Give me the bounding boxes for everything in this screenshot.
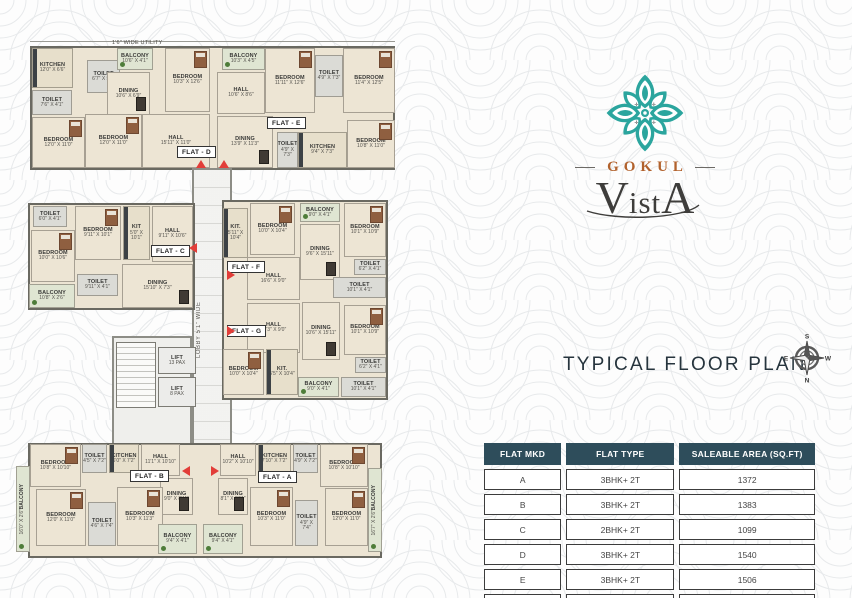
room-dimensions: 10'8" X 10'10" [328, 466, 359, 472]
room-dimensions: 4'5" X 7'2" [83, 459, 106, 465]
room-balcony: BALCONY10'6" X 4'1" [117, 48, 153, 70]
table-cell: 1540 [679, 544, 815, 565]
room-dimensions: 11'11" X 12'6" [275, 81, 305, 87]
room-bedroom: BEDROOM10'8" X 10'10" [30, 444, 81, 487]
bed-icon [379, 51, 392, 68]
room-dining: DINING10'6" X 6'9" [107, 72, 150, 115]
table-cell: 1165 [679, 594, 815, 598]
room-dining: DINING9'0" X 8'11" [160, 478, 193, 515]
room-balcony: BALCONY9'4" X 4'1" [158, 524, 197, 554]
room-bedroom: BEDROOM10'1" X 10'9" [344, 203, 386, 257]
svg-text:✛: ✛ [634, 120, 638, 126]
bed-icon [194, 51, 207, 68]
room-kitchen: KIT.5'5" X 10'4" [266, 349, 298, 395]
top-dimension-line [30, 41, 395, 42]
room-toilet: TOILET4'9" X 7'3" [277, 132, 298, 168]
room-bedroom: BEDROOM10'3" X 12'6" [165, 48, 210, 112]
dining-table-icon [234, 497, 244, 511]
left-dash [575, 167, 595, 168]
dining-table-icon [326, 262, 336, 276]
table-header-cell: FLAT TYPE [566, 443, 674, 465]
room-dimensions: 16'0" X 2'6" [20, 509, 26, 534]
room-dimensions: 10'3" X 12'6" [173, 80, 201, 86]
table-row: E3BHK+ 2T1506 [484, 569, 815, 590]
room-dimensions: 10'8" X 2'6" [39, 296, 64, 302]
bed-icon [277, 490, 290, 507]
flat-chip-a: FLAT - A [258, 471, 297, 483]
room-dimensions: 10'0" X 10'6" [39, 256, 67, 262]
bed-icon [279, 206, 292, 223]
room-kitchen: KITCHEN9'4" X 7'3" [298, 132, 347, 168]
room-dimensions: 9'6" X 15'11" [306, 252, 334, 258]
flat-area-table: FLAT MKDFLAT TYPESALEABLE AREA (SQ.FT) A… [479, 439, 820, 598]
entry-arrow-right [227, 326, 235, 336]
room-dimensions: 9'0" X 4'1" [309, 213, 332, 219]
room-kitchen: KIT.5'11" X 10'4" [223, 208, 248, 258]
room-kitchen: KIT5'0" X 10'1" [123, 206, 150, 260]
room-dimensions: 10'6" X 8'6" [228, 93, 253, 99]
flat-area-table-wrap: FLAT MKDFLAT TYPESALEABLE AREA (SQ.FT) A… [479, 439, 820, 598]
floor-plan: 1'6" WIDE UTILITY LOBBY 5'1" WIDE KITCHE… [0, 0, 480, 598]
table-row: A3BHK+ 2T1372 [484, 469, 815, 490]
room-balcony: BALCONY16'7" X 2'6" [368, 468, 382, 552]
room-dimensions: 9'4" X 7'3" [311, 150, 334, 156]
room-dimensions: 16'7" X 2'6" [372, 510, 378, 535]
room-dimensions: 9'4" X 4'1" [166, 539, 189, 545]
room-dimensions: 10'1" X 4'1" [351, 387, 376, 393]
table-row: D3BHK+ 2T1540 [484, 544, 815, 565]
room-dimensions: 10'0" X 10'4" [258, 229, 286, 235]
bed-icon [70, 492, 83, 509]
room-dimensions: 12'0" X 11'0" [100, 141, 128, 147]
room-dimensions: 6'2" X 4'1" [359, 267, 382, 273]
room-dimensions: 6'2" X 4'1" [359, 365, 382, 371]
compass-bottom-label: N [805, 378, 810, 385]
right-dash [695, 167, 715, 168]
room-dimensions: 10'1" X 4'1" [347, 288, 372, 294]
room-toilet: TOILET4'9" X 7'3" [315, 55, 343, 97]
room-bedroom: BEDROOM12'0" X 11'0" [325, 488, 368, 546]
room-kitchen: KITCHEN6'0" X 7'2" [109, 444, 139, 473]
dining-table-icon [179, 497, 189, 511]
room-balcony: BALCONY9'0" X 4'1" [300, 203, 340, 222]
room-bedroom: BEDROOM10'0" X 10'4" [250, 203, 295, 255]
table-cell: 2BHK+ 2T [566, 594, 674, 598]
table-cell: D [484, 544, 561, 565]
room-dimensions: 11'4" X 12'5" [355, 81, 383, 87]
table-cell: 1506 [679, 569, 815, 590]
room-dimensions: 4'9" X 7'2" [294, 459, 317, 465]
room-dimensions: 4'6" X 7'4" [91, 524, 114, 530]
bed-icon [59, 233, 72, 250]
table-row: F2BHK+ 2T1165 [484, 594, 815, 598]
dining-table-icon [136, 97, 146, 111]
room-balcony: BALCONY10'3" X 4'5" [222, 48, 265, 70]
room-dining: DINING15'10" X 7'3" [122, 264, 193, 308]
room-dimensions: 5'11" X 10'4" [224, 231, 247, 242]
room-label: BALCONY [372, 485, 378, 510]
room-dimensions: 10'0" X 10'4" [229, 372, 257, 378]
table-row: B3BHK+ 2T1383 [484, 494, 815, 515]
bed-icon [69, 120, 82, 137]
room-dimensions: 9'11" X 10'1" [84, 233, 112, 239]
table-header-cell: FLAT MKD [484, 443, 561, 465]
room-bedroom: BEDROOM10'8" X 11'0" [347, 120, 395, 168]
room-bedroom: BEDROOM12'0" X 11'0" [36, 489, 86, 546]
room-dimensions: 4'9" X 7'4" [296, 521, 317, 532]
room-dining: DINING8'1" X 8'11" [218, 478, 248, 515]
room-toilet: TOILET9'11" X 4'1" [77, 274, 118, 296]
entry-arrow-up [219, 160, 229, 168]
table-cell: 3BHK+ 2T [566, 494, 674, 515]
bed-icon [379, 123, 392, 140]
room-dimensions: 10'8" X 10'10" [40, 466, 71, 472]
brochure-page: 1'6" WIDE UTILITY LOBBY 5'1" WIDE KITCHE… [0, 0, 852, 598]
brand-name-top-row: GOKUL [565, 159, 725, 176]
bed-icon [370, 308, 383, 325]
room-dimensions: 10'6" X 4'1" [122, 59, 147, 65]
room-dimensions: 7'10" X 7'2" [262, 459, 287, 465]
table-cell: 3BHK+ 2T [566, 469, 674, 490]
bed-icon [126, 117, 139, 134]
brand-logo: ✛✛ ✛✛ GOKUL VistA [565, 70, 725, 218]
stair [116, 342, 156, 408]
flat-chip-d: FLAT - D [177, 146, 216, 158]
room-dimensions: 10'2" X 10'10" [222, 460, 253, 466]
table-cell: 1383 [679, 494, 815, 515]
table-cell: 1372 [679, 469, 815, 490]
room-toilet: TOILET7'6" X 4'1" [32, 90, 72, 115]
room-dimensions: 5'0" X 10'1" [124, 231, 149, 242]
flat-chip-e: FLAT - E [267, 117, 306, 129]
dining-table-icon [179, 290, 189, 304]
dining-table-icon [259, 150, 269, 164]
entry-arrow-left [189, 243, 197, 253]
table-cell: F [484, 594, 561, 598]
room-dimensions: 10'3" X 4'5" [231, 59, 256, 65]
room-dimensions: 12'0" X 11'0" [333, 517, 361, 523]
room-toilet: TOILET4'9" X 7'4" [295, 500, 318, 546]
table-cell: C [484, 519, 561, 540]
room-bedroom: BEDROOM9'11" X 10'1" [75, 206, 121, 260]
room-dimensions: 9'11" X 4'1" [85, 285, 110, 291]
room-balcony: BALCONY9'0" X 4'1" [298, 377, 339, 397]
entry-arrow-left [182, 466, 190, 476]
room-dimensions: 12'0" X 11'0" [47, 518, 75, 524]
room-toilet: TOILET4'5" X 7'2" [82, 444, 107, 473]
bed-icon [65, 447, 78, 464]
room-dimensions: 4'9" X 7'3" [278, 148, 297, 159]
room-bedroom: BEDROOM12'0" X 11'0" [85, 114, 142, 168]
compass-top-label: S [805, 334, 810, 341]
svg-text:✛: ✛ [652, 120, 656, 126]
room-dimensions: 5'5" X 10'4" [269, 372, 294, 378]
compass-icon: S N E W [781, 332, 833, 384]
room-dimensions: 10'1" X 10'9" [351, 330, 379, 336]
bed-icon [147, 490, 160, 507]
room-bedroom: BEDROOM12'0" X 11'0" [32, 117, 85, 168]
room-toilet: TOILET6'2" X 4'1" [355, 357, 386, 373]
room-dimensions: 9'11" X 10'6" [159, 234, 187, 240]
brand-name-main: VistA [565, 177, 725, 218]
bed-icon [352, 447, 365, 464]
room-dimensions: 10'3" X 11'0" [258, 517, 286, 523]
wordmark-swash [583, 204, 703, 222]
room-balcony: BALCONY9'4" X 4'1" [203, 524, 243, 554]
table-cell: 3BHK+ 2T [566, 544, 674, 565]
room-dimensions: 7'6" X 4'1" [41, 103, 64, 109]
svg-text:✛: ✛ [634, 102, 638, 108]
room-toilet: TOILET6'0" X 4'1" [33, 206, 67, 227]
room-balcony: BALCONY16'0" X 2'6" [16, 466, 30, 552]
table-cell: 2BHK+ 2T [566, 519, 674, 540]
room-bedroom: BEDROOM10'0" X 10'6" [31, 230, 75, 282]
page-title: TYPICAL FLOOR PLAN [563, 354, 807, 376]
room-dimensions: 8 PAX [170, 392, 184, 398]
room-lift: LIFT8 PAX [158, 377, 196, 407]
table-cell: B [484, 494, 561, 515]
room-dimensions: 4'9" X 7'3" [318, 76, 341, 82]
room-bedroom: BEDROOM10'1" X 10'9" [344, 305, 386, 355]
bed-icon [352, 491, 365, 508]
table-cell: 3BHK+ 2T [566, 569, 674, 590]
lotus-flower-icon: ✛✛ ✛✛ [605, 70, 685, 156]
entry-arrow-right [227, 270, 235, 280]
room-kitchen: KITCHEN7'10" X 7'2" [258, 444, 291, 473]
room-dining: DINING10'6" X 15'11" [302, 302, 340, 360]
room-hall: HALL10'2" X 10'10" [220, 444, 256, 476]
room-bedroom: BEDROOM10'8" X 10'10" [320, 444, 368, 487]
room-dining: DINING9'6" X 15'11" [300, 224, 340, 280]
flat-chip-c: FLAT - C [151, 245, 190, 257]
table-header-cell: SALEABLE AREA (SQ.FT) [679, 443, 815, 465]
room-toilet: TOILET10'1" X 4'1" [333, 277, 386, 298]
room-toilet: TOILET10'1" X 4'1" [341, 377, 386, 397]
room-bedroom: BEDROOM11'11" X 12'6" [265, 48, 315, 113]
bed-icon [105, 209, 118, 226]
room-kitchen: KITCHEN12'0" X 6'6" [32, 48, 73, 88]
room-dimensions: 6'0" X 7'2" [113, 459, 136, 465]
bed-icon [299, 51, 312, 68]
compass-left-label: E [784, 355, 789, 362]
table-row: C2BHK+ 2T1099 [484, 519, 815, 540]
room-balcony: BALCONY10'8" X 2'6" [29, 284, 75, 308]
room-bedroom: BEDROOM10'0" X 10'4" [223, 349, 264, 395]
dining-table-icon [326, 342, 336, 356]
room-dimensions: 13'9" X 11'3" [231, 142, 259, 148]
room-dimensions: 10'1" X 10'9" [351, 230, 379, 236]
entry-arrow-up [196, 160, 206, 168]
room-dimensions: 10'3" X 11'3" [126, 517, 154, 523]
svg-text:✛: ✛ [652, 102, 656, 108]
room-dimensions: 10'6" X 15'11" [306, 331, 337, 337]
table-cell: 1099 [679, 519, 815, 540]
table-cell: A [484, 469, 561, 490]
bed-icon [248, 352, 261, 369]
bed-icon [370, 206, 383, 223]
room-dimensions: 9'4" X 4'1" [212, 539, 235, 545]
room-toilet: TOILET4'9" X 7'2" [293, 444, 318, 473]
entry-arrow-right [211, 466, 219, 476]
room-dimensions: 10'8" X 11'0" [357, 144, 385, 150]
room-dimensions: 13 PAX [169, 361, 186, 367]
room-bedroom: BEDROOM10'3" X 11'3" [117, 487, 163, 546]
lobby-width-label: LOBBY 5'1" WIDE [196, 258, 202, 358]
room-label: BALCONY [20, 484, 26, 509]
room-dimensions: 6'0" X 4'1" [39, 217, 62, 223]
room-dimensions: 16'6" X 9'0" [261, 279, 286, 285]
room-bedroom: BEDROOM11'4" X 12'5" [343, 48, 395, 113]
room-toilet: TOILET4'6" X 7'4" [88, 502, 116, 546]
room-dimensions: 11'1" X 10'10" [145, 460, 176, 466]
room-toilet: TOILET6'2" X 4'1" [354, 259, 386, 275]
flat-chip-b: FLAT - B [130, 470, 169, 482]
room-dimensions: 15'10" X 7'3" [143, 286, 171, 292]
utility-width-label: 1'6" WIDE UTILITY [112, 40, 162, 46]
room-bedroom: BEDROOM10'3" X 11'0" [250, 487, 293, 546]
compass-right-label: W [825, 355, 832, 362]
table-cell: E [484, 569, 561, 590]
table-header-row: FLAT MKDFLAT TYPESALEABLE AREA (SQ.FT) [484, 443, 815, 465]
room-dimensions: 9'0" X 4'1" [307, 387, 330, 393]
room-lift: LIFT13 PAX [158, 347, 196, 374]
room-hall: HALL10'6" X 8'6" [217, 72, 265, 114]
room-dimensions: 12'0" X 11'0" [45, 143, 73, 149]
room-dimensions: 12'0" X 6'6" [40, 68, 65, 74]
